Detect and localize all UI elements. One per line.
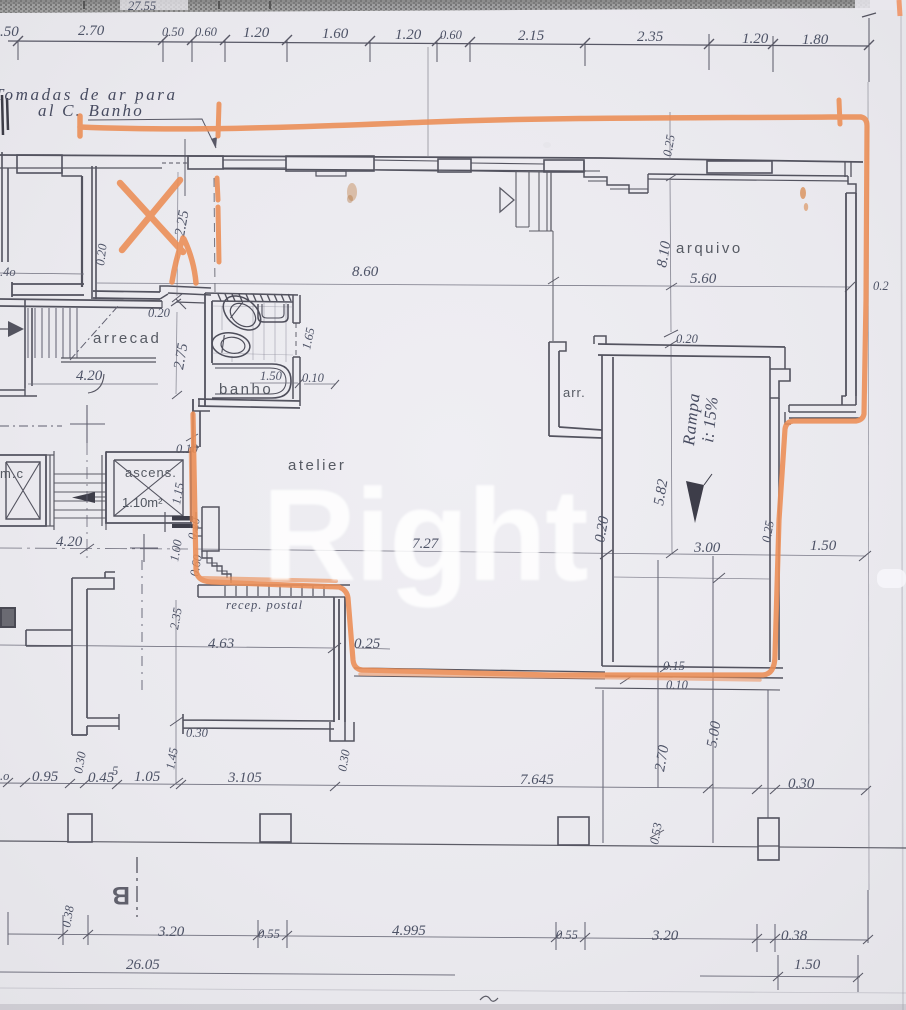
svg-text:5: 5 xyxy=(112,764,118,778)
svg-text:1.20: 1.20 xyxy=(742,31,769,47)
svg-text:0.60: 0.60 xyxy=(440,28,463,42)
svg-text:arr.: arr. xyxy=(563,385,586,400)
svg-text:3.105: 3.105 xyxy=(227,770,262,786)
svg-text:4.20: 4.20 xyxy=(76,368,103,384)
svg-text:B: B xyxy=(112,881,130,909)
svg-text:26.05: 26.05 xyxy=(126,957,160,973)
svg-text:2.70: 2.70 xyxy=(78,23,105,39)
svg-text:1.50: 1.50 xyxy=(810,538,837,554)
svg-text:1.10m²: 1.10m² xyxy=(122,495,163,510)
svg-text:1.20: 1.20 xyxy=(395,27,422,43)
svg-text:1.50: 1.50 xyxy=(260,369,283,383)
svg-text:0.30: 0.30 xyxy=(186,726,209,740)
svg-text:0.20: 0.20 xyxy=(148,306,171,320)
svg-text:0.95: 0.95 xyxy=(32,769,59,785)
svg-text:1.05: 1.05 xyxy=(134,769,161,785)
svg-text:1.20: 1.20 xyxy=(243,25,270,41)
svg-text:m.c: m.c xyxy=(0,466,24,481)
svg-text:0.38: 0.38 xyxy=(781,928,808,944)
svg-text:4.20: 4.20 xyxy=(56,534,83,550)
svg-text:0.55: 0.55 xyxy=(258,927,280,941)
svg-text:4.995: 4.995 xyxy=(392,923,426,939)
svg-text:0.20: 0.20 xyxy=(93,242,110,266)
svg-text:7.645: 7.645 xyxy=(520,772,554,788)
svg-text:0.30: 0.30 xyxy=(788,776,815,792)
svg-text:0.20: 0.20 xyxy=(676,332,699,346)
svg-text:3.20: 3.20 xyxy=(157,924,185,940)
svg-text:ascens.: ascens. xyxy=(125,465,177,480)
svg-text:4.63: 4.63 xyxy=(208,636,234,652)
svg-text:0.10: 0.10 xyxy=(302,371,325,385)
svg-text:0.2: 0.2 xyxy=(873,279,889,293)
svg-text:2.35: 2.35 xyxy=(637,29,664,45)
svg-text:Right: Right xyxy=(262,461,588,608)
svg-text:al C. Banho: al C. Banho xyxy=(38,101,144,120)
svg-text:.50: .50 xyxy=(0,24,19,40)
svg-text:arquivo: arquivo xyxy=(676,240,743,257)
svg-text:.4o: .4o xyxy=(0,265,16,279)
svg-text:banho: banho xyxy=(219,381,273,398)
svg-text:1.50: 1.50 xyxy=(794,957,821,973)
svg-text:0.45: 0.45 xyxy=(88,770,115,786)
svg-text:1.60: 1.60 xyxy=(322,26,349,42)
svg-text:0.15: 0.15 xyxy=(663,659,685,673)
svg-text:.o: .o xyxy=(0,769,9,783)
svg-text:0.55: 0.55 xyxy=(556,928,578,942)
svg-text:27.55: 27.55 xyxy=(128,0,156,13)
svg-text:0.60: 0.60 xyxy=(195,25,218,39)
svg-text:5.60: 5.60 xyxy=(690,271,717,287)
svg-text:0.50: 0.50 xyxy=(162,25,185,39)
svg-text:1.80: 1.80 xyxy=(802,32,829,48)
svg-text:arrecad: arrecad xyxy=(93,330,161,347)
svg-text:3.20: 3.20 xyxy=(651,928,679,944)
svg-text:0.25: 0.25 xyxy=(354,636,381,652)
svg-text:3.00: 3.00 xyxy=(693,540,721,556)
svg-text:8.60: 8.60 xyxy=(352,264,379,280)
svg-text:2.15: 2.15 xyxy=(518,28,545,44)
